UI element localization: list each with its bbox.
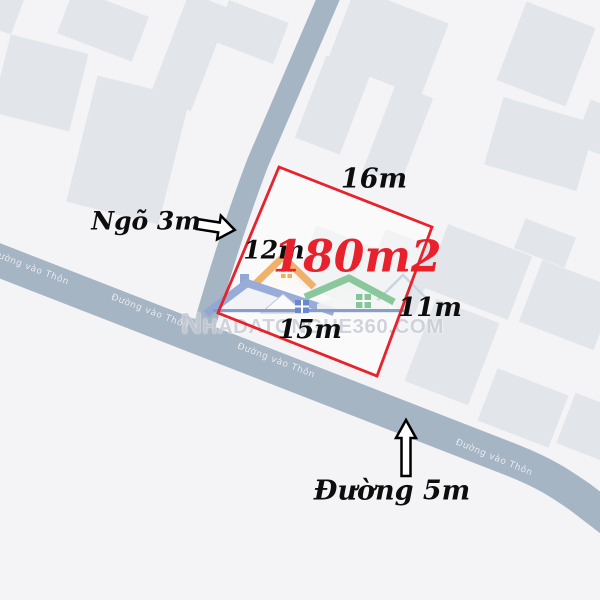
area-label: 180m2 — [272, 232, 441, 283]
right-arrow-icon — [195, 212, 236, 242]
dim-bottom-label: 15m — [278, 315, 342, 345]
road-callout-label: Đường 5m — [314, 476, 471, 507]
dim-top-label: 16m — [341, 164, 407, 195]
house-green-icon — [305, 278, 394, 312]
up-arrow-icon — [396, 420, 416, 476]
alley-callout-label: Ngõ 3m — [91, 207, 201, 236]
map-canvas: Đường vào Thôn Đường vào Thôn Đường vào … — [0, 0, 600, 600]
map-overlay-layer — [0, 0, 600, 600]
dim-right-label: 11m — [398, 293, 462, 323]
